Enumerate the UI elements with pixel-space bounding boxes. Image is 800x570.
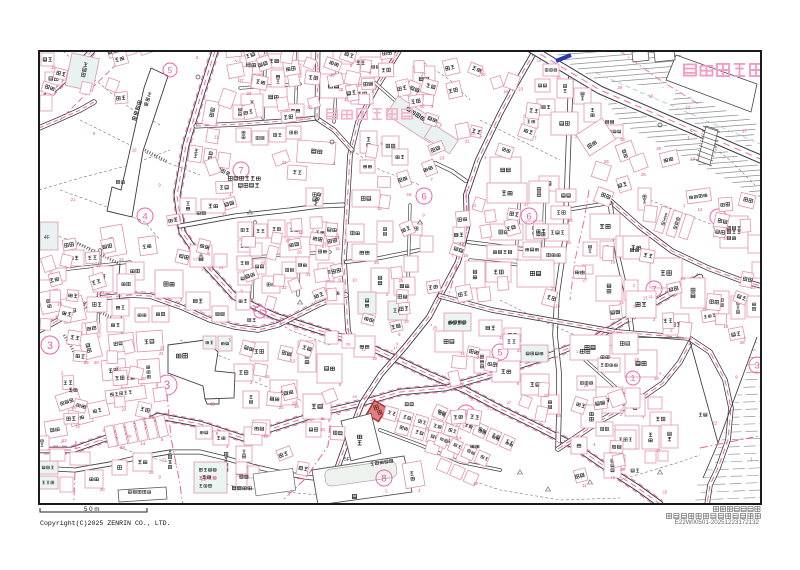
svg-text:13: 13 <box>643 295 648 300</box>
svg-text:25: 25 <box>399 278 404 283</box>
svg-text:13: 13 <box>686 105 691 110</box>
svg-text:26: 26 <box>604 159 609 164</box>
svg-text:3: 3 <box>754 360 759 371</box>
svg-text:13: 13 <box>472 203 477 208</box>
svg-text:17: 17 <box>742 129 747 134</box>
svg-text:27: 27 <box>162 457 167 462</box>
svg-text:23: 23 <box>751 285 756 290</box>
svg-text:E22W00501-20251223172132: E22W00501-20251223172132 <box>675 519 760 526</box>
svg-text:16: 16 <box>470 397 475 402</box>
svg-text:Copyright(C)2025 ZENRIN CO., L: Copyright(C)2025 ZENRIN CO., LTD. <box>40 520 171 527</box>
svg-text:20: 20 <box>263 314 268 319</box>
svg-text:18: 18 <box>263 434 268 439</box>
svg-text:14: 14 <box>457 435 462 440</box>
svg-text:4F: 4F <box>44 235 50 241</box>
svg-text:15: 15 <box>210 402 215 407</box>
svg-text:26: 26 <box>346 342 351 347</box>
svg-text:20: 20 <box>470 131 475 136</box>
svg-text:10: 10 <box>298 230 303 235</box>
svg-text:19: 19 <box>292 400 297 405</box>
svg-text:7: 7 <box>238 165 243 176</box>
svg-text:26: 26 <box>641 172 646 177</box>
svg-text:21: 21 <box>306 272 311 277</box>
svg-text:22: 22 <box>282 285 287 290</box>
svg-text:27: 27 <box>421 72 426 77</box>
svg-text:13: 13 <box>291 359 296 364</box>
svg-text:23: 23 <box>345 327 350 332</box>
svg-text:28: 28 <box>120 445 125 450</box>
svg-text:23: 23 <box>247 91 252 96</box>
svg-text:10: 10 <box>420 104 425 109</box>
svg-text:15: 15 <box>649 94 654 99</box>
svg-text:15: 15 <box>663 490 668 495</box>
svg-text:14: 14 <box>335 246 340 251</box>
svg-text:20: 20 <box>320 427 325 432</box>
svg-text:14: 14 <box>141 441 146 446</box>
svg-text:6: 6 <box>421 191 426 202</box>
svg-text:16: 16 <box>620 467 625 472</box>
svg-text:10: 10 <box>352 277 357 282</box>
svg-text:13: 13 <box>96 263 101 268</box>
svg-text:10: 10 <box>335 235 340 240</box>
svg-text:27: 27 <box>524 202 529 207</box>
svg-text:25: 25 <box>477 355 482 360</box>
svg-text:15: 15 <box>504 89 509 94</box>
svg-text:18: 18 <box>654 376 659 381</box>
svg-text:18: 18 <box>727 228 732 233</box>
svg-text:23: 23 <box>518 87 523 92</box>
svg-text:21: 21 <box>723 236 728 241</box>
svg-text:18: 18 <box>473 481 478 486</box>
svg-text:17: 17 <box>239 78 244 83</box>
svg-text:5: 5 <box>497 347 502 358</box>
svg-text:20: 20 <box>141 376 146 381</box>
svg-text:21: 21 <box>487 406 492 411</box>
svg-text:10: 10 <box>537 58 542 63</box>
svg-text:22: 22 <box>160 346 165 351</box>
svg-text:19: 19 <box>372 356 377 361</box>
svg-text:5 0 m: 5 0 m <box>84 506 99 513</box>
svg-text:20: 20 <box>100 487 105 492</box>
svg-text:11: 11 <box>214 134 219 139</box>
svg-text:22: 22 <box>307 104 312 109</box>
svg-text:11: 11 <box>582 483 587 488</box>
svg-text:29: 29 <box>285 238 290 243</box>
svg-text:26: 26 <box>149 470 154 475</box>
svg-text:5F: 5F <box>344 457 350 463</box>
svg-text:4: 4 <box>142 211 148 222</box>
svg-text:21: 21 <box>173 217 178 222</box>
svg-text:18: 18 <box>463 253 468 258</box>
svg-text:12: 12 <box>698 207 703 212</box>
svg-text:18: 18 <box>620 137 625 142</box>
svg-text:6: 6 <box>526 211 531 222</box>
svg-text:16: 16 <box>352 394 357 399</box>
svg-text:26: 26 <box>72 404 77 409</box>
svg-text:20: 20 <box>279 405 284 410</box>
svg-text:19: 19 <box>691 157 696 162</box>
svg-text:15: 15 <box>555 304 560 309</box>
svg-text:21: 21 <box>71 197 76 202</box>
svg-text:21: 21 <box>100 290 105 295</box>
svg-text:24: 24 <box>314 66 319 71</box>
svg-text:26: 26 <box>568 218 573 223</box>
svg-text:28: 28 <box>339 87 344 92</box>
svg-text:24: 24 <box>119 257 124 262</box>
svg-text:23: 23 <box>439 155 444 160</box>
svg-text:18: 18 <box>556 413 561 418</box>
svg-text:23: 23 <box>479 69 484 74</box>
svg-text:23: 23 <box>261 261 266 266</box>
svg-text:24: 24 <box>219 265 224 270</box>
svg-text:29: 29 <box>618 85 623 90</box>
svg-text:16: 16 <box>566 240 571 245</box>
svg-text:5: 5 <box>168 65 173 75</box>
svg-text:1: 1 <box>631 373 636 383</box>
svg-text:19: 19 <box>611 260 616 265</box>
svg-text:18: 18 <box>634 357 639 362</box>
svg-text:27: 27 <box>583 278 588 283</box>
svg-text:10: 10 <box>132 148 137 153</box>
svg-text:14: 14 <box>301 116 306 121</box>
svg-text:22: 22 <box>544 393 549 398</box>
svg-text:22: 22 <box>201 477 206 482</box>
svg-text:23: 23 <box>294 326 299 331</box>
svg-text:21: 21 <box>282 160 287 165</box>
svg-text:29: 29 <box>584 383 589 388</box>
svg-text:4: 4 <box>258 308 262 317</box>
svg-text:3: 3 <box>47 340 53 352</box>
svg-text:23: 23 <box>122 407 127 412</box>
svg-text:26: 26 <box>149 415 154 420</box>
svg-text:23: 23 <box>633 303 638 308</box>
svg-text:27: 27 <box>193 257 198 262</box>
svg-text:18: 18 <box>610 475 615 480</box>
svg-text:29: 29 <box>656 146 661 151</box>
svg-text:11: 11 <box>222 212 227 217</box>
svg-text:12: 12 <box>362 347 367 352</box>
svg-text:17: 17 <box>322 244 327 249</box>
svg-text:25: 25 <box>84 360 89 365</box>
svg-text:27: 27 <box>507 400 512 405</box>
svg-text:25: 25 <box>374 260 379 265</box>
svg-text:14: 14 <box>460 351 465 356</box>
svg-text:28: 28 <box>115 366 120 371</box>
svg-text:22: 22 <box>713 421 718 426</box>
svg-text:21: 21 <box>209 266 214 271</box>
svg-text:23: 23 <box>681 276 686 281</box>
svg-text:20: 20 <box>94 360 99 365</box>
svg-text:19: 19 <box>404 319 409 324</box>
svg-text:26: 26 <box>297 250 302 255</box>
svg-text:25: 25 <box>433 325 438 330</box>
svg-text:15: 15 <box>75 423 80 428</box>
svg-text:21: 21 <box>159 351 164 356</box>
svg-text:18: 18 <box>330 73 335 78</box>
svg-text:28: 28 <box>127 433 132 438</box>
svg-text:18: 18 <box>407 192 412 197</box>
svg-text:15: 15 <box>265 374 270 379</box>
svg-text:18: 18 <box>723 324 728 329</box>
svg-text:8: 8 <box>381 473 386 484</box>
svg-text:21: 21 <box>465 139 470 144</box>
